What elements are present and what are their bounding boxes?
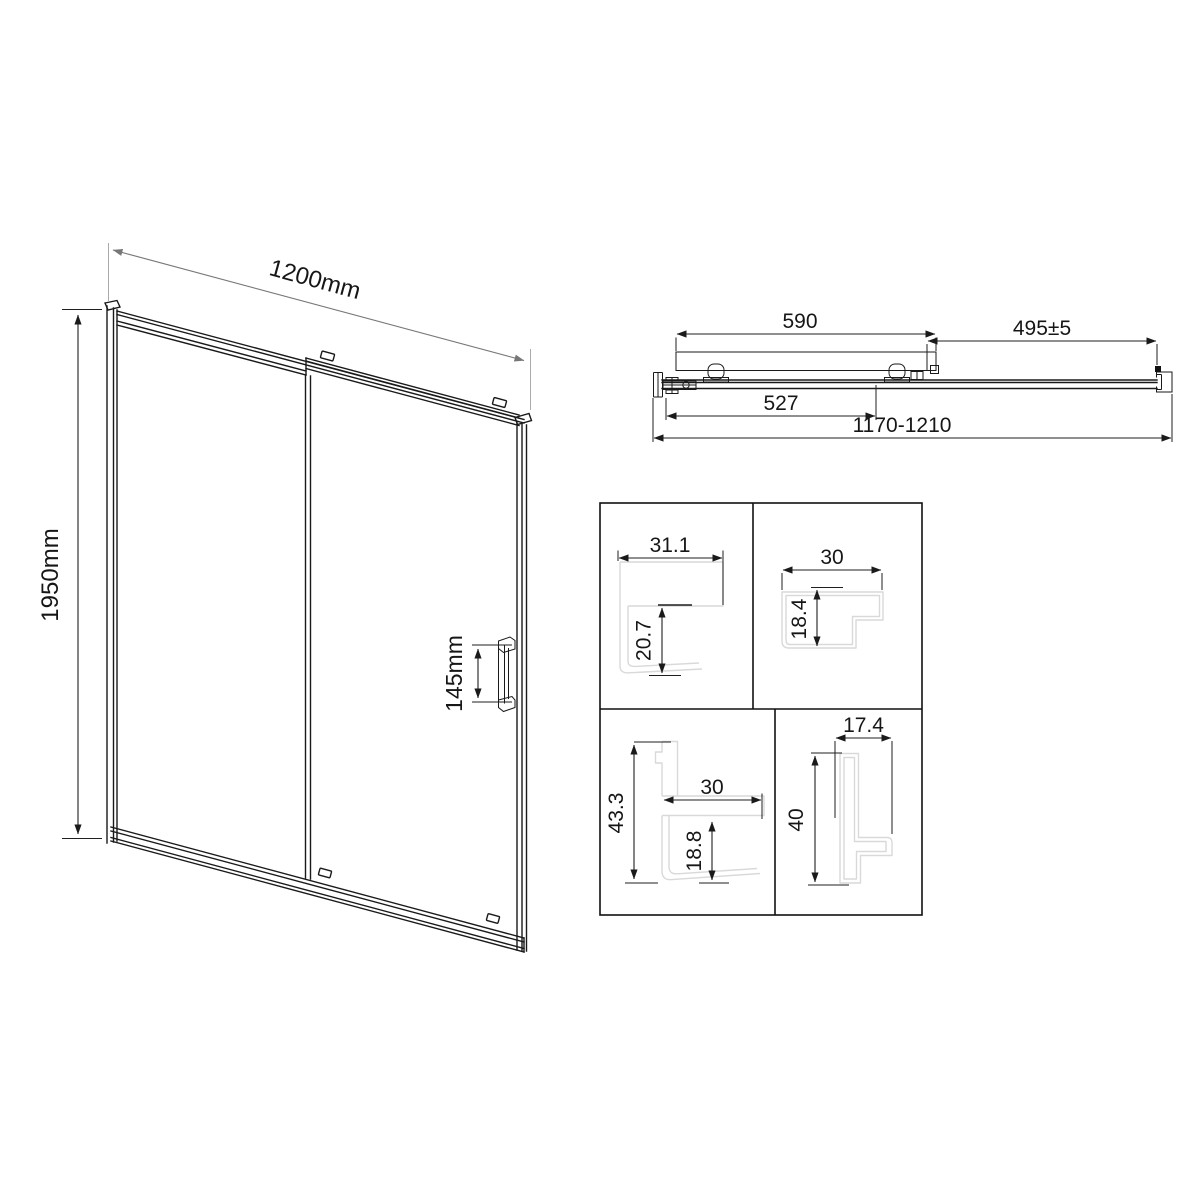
wall-profile-detail: 31.1 20.7 [618, 534, 723, 676]
left-wall-channel [654, 373, 697, 398]
entry-width-dimension: 495±5 [927, 317, 1157, 371]
top-rail-width-label: 30 [820, 546, 843, 569]
overall-adjustment-dimension: 1170-1210 [653, 394, 1172, 442]
top-track [117, 311, 524, 423]
door-stile-profile-section [840, 754, 892, 884]
door-panel-width-label: 590 [782, 310, 817, 333]
wall-profile-depth-label: 20.7 [633, 620, 656, 661]
door-stile-profile-detail: 17.4 40 [785, 714, 892, 885]
frame-profile-width-label: 30 [700, 776, 723, 799]
door-stile-height-label: 40 [785, 808, 808, 831]
overall-width-label: 1200mm [266, 254, 363, 305]
handle-height-dimension: 145mm [441, 635, 512, 712]
overall-height-dimension: 1950mm [37, 310, 102, 839]
rail-width-dimension: 527 [666, 385, 876, 420]
door-stile-width-label: 17.4 [843, 714, 884, 737]
front-view: 1950mm 1200mm 145mm [37, 243, 532, 952]
sliding-panel [676, 352, 936, 371]
frame-profile-height-label: 43.3 [605, 793, 628, 834]
overall-width-dimension: 1200mm [109, 243, 531, 410]
rail-width-label: 527 [763, 392, 798, 415]
center-divider [306, 375, 311, 879]
technical-drawing-page: 1950mm 1200mm 145mm [0, 0, 1200, 1200]
bottom-guide-right [486, 914, 499, 924]
frame-profile-depth-label: 18.8 [683, 831, 706, 872]
bottom-guide-left [318, 868, 331, 878]
overall-height-label: 1950mm [37, 528, 64, 621]
roller-cover-left [320, 351, 334, 361]
anti-jump-block [911, 372, 923, 380]
roller-cover-right [492, 397, 506, 407]
top-rail-profile-detail: 30 18.4 [782, 546, 883, 648]
left-wall-profile [105, 301, 120, 844]
door-panel-width-dimension: 590 [676, 310, 936, 351]
right-wall-profile [515, 414, 532, 952]
door-handle [499, 637, 516, 712]
top-rail-depth-label: 18.4 [788, 598, 811, 639]
wall-profile-width-label: 31.1 [650, 534, 691, 557]
shower-door-technical-drawing: 1950mm 1200mm 145mm [0, 0, 1200, 1200]
bottom-rail [111, 827, 524, 952]
top-view: 590 495±5 527 1170-1210 [653, 310, 1172, 442]
handle-height-label: 145mm [441, 635, 467, 712]
profile-details: 31.1 20.7 30 18.4 [600, 503, 922, 915]
frame-profile-section [656, 742, 765, 880]
overall-adjustment-label: 1170-1210 [853, 414, 952, 437]
panel-end-cap [931, 366, 939, 374]
entry-width-label: 495±5 [1013, 317, 1071, 340]
sliding-door-top-rail [306, 351, 519, 426]
frame-profile-detail: 43.3 30 18.8 [605, 742, 764, 884]
